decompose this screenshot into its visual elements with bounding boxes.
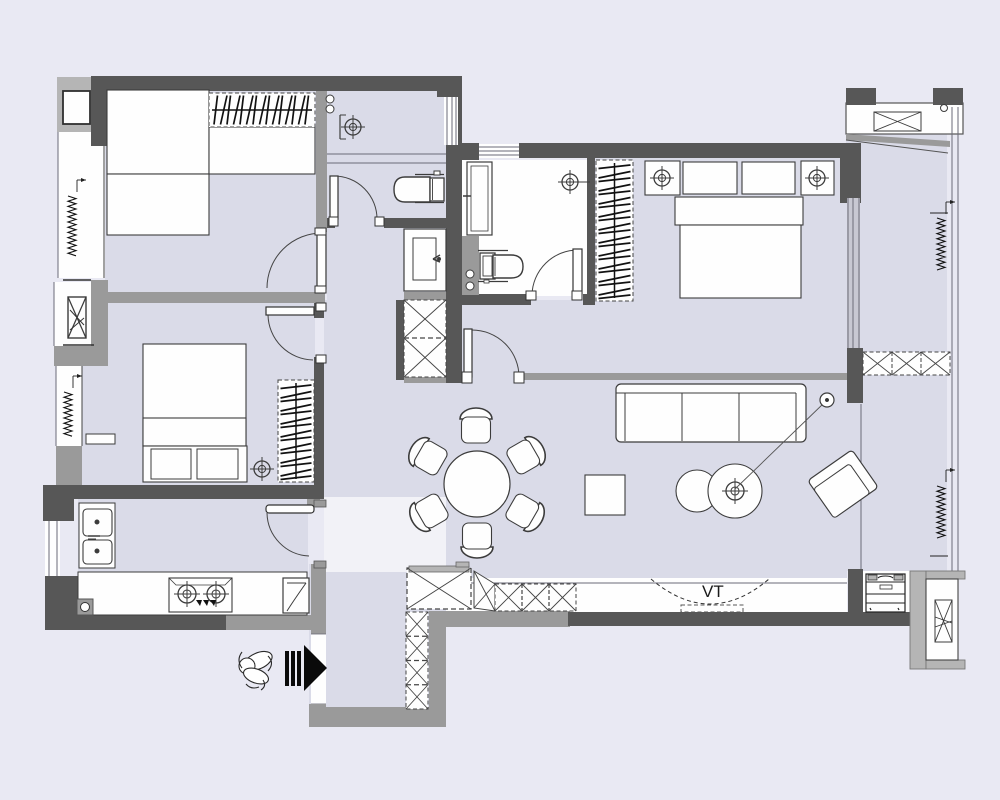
svg-text:VT: VT [702,582,724,601]
